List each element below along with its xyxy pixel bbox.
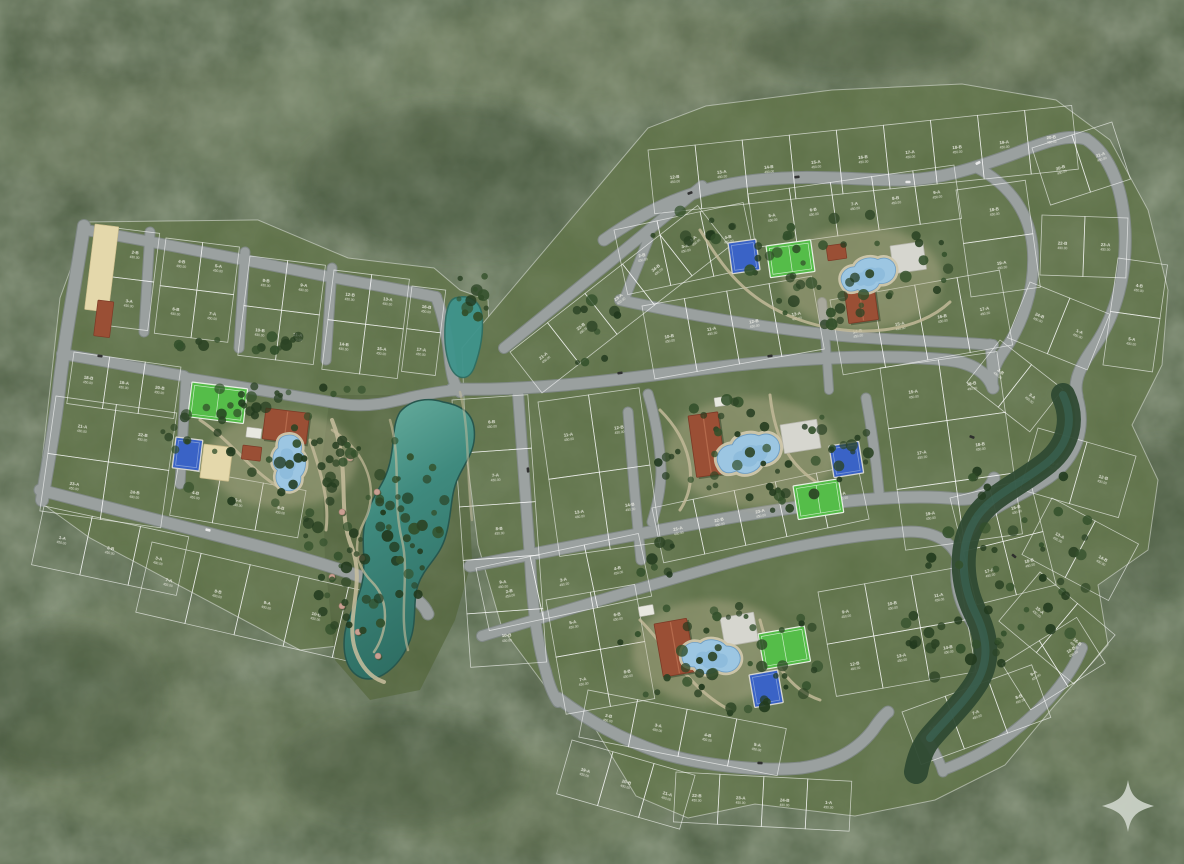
tree	[293, 332, 303, 342]
tree	[732, 460, 743, 471]
tree	[324, 592, 330, 598]
tree	[755, 255, 762, 262]
tree	[776, 298, 782, 304]
tree	[411, 582, 418, 589]
tree	[925, 562, 932, 569]
tree	[375, 497, 384, 506]
tree	[840, 241, 847, 248]
tree	[675, 449, 681, 455]
site-plan-image: 2-B450.003-A450.004-B450.005-A450.006-B4…	[0, 0, 1184, 864]
lot-block: 11-A450.0012-B450.0013-A450.0014-B450.00	[538, 388, 661, 557]
tree	[291, 424, 298, 431]
tree	[826, 318, 838, 330]
tree	[846, 439, 858, 451]
tree	[710, 606, 719, 615]
tree	[270, 345, 280, 355]
tree	[736, 610, 742, 616]
tree	[260, 402, 271, 413]
tree	[301, 455, 308, 462]
lot-label: 12-B450.00	[614, 424, 625, 435]
tree	[402, 493, 413, 504]
tree	[968, 473, 976, 481]
tree	[811, 456, 821, 466]
tree	[1057, 578, 1064, 585]
tree	[601, 355, 608, 362]
tree	[354, 551, 360, 557]
tree	[277, 488, 285, 496]
tree	[1024, 607, 1030, 613]
tree	[859, 303, 865, 309]
tree	[772, 247, 783, 258]
tree	[359, 554, 370, 565]
tree	[164, 433, 173, 442]
tree	[786, 273, 795, 282]
tree	[575, 360, 580, 365]
tree	[799, 620, 805, 626]
tree	[757, 639, 768, 650]
tree	[351, 450, 359, 458]
tree	[1064, 628, 1076, 640]
tree	[696, 657, 703, 664]
tree	[919, 255, 929, 265]
tree	[462, 309, 469, 316]
tree	[391, 437, 398, 444]
tree	[706, 485, 711, 490]
tree	[783, 310, 788, 315]
tree	[1043, 603, 1053, 613]
tree	[1022, 517, 1028, 523]
tree	[997, 659, 1006, 668]
lot-label: 17-A450.00	[416, 347, 428, 358]
tree	[214, 384, 225, 395]
tree	[238, 399, 246, 407]
tree	[414, 590, 423, 599]
tree	[942, 526, 954, 538]
tree	[400, 513, 410, 523]
garden-gazebo	[375, 653, 381, 659]
tree	[341, 577, 351, 587]
tree	[746, 409, 755, 418]
tree	[281, 336, 289, 344]
tree	[465, 295, 476, 306]
tree	[826, 308, 836, 318]
tree	[1045, 624, 1056, 635]
lot-label: 19-A450.00	[999, 139, 1010, 150]
tree	[1040, 547, 1045, 552]
tree	[993, 566, 1000, 573]
lot-label: 10-B450.00	[502, 633, 513, 643]
tree	[856, 308, 865, 317]
tree	[954, 616, 962, 624]
tree	[909, 611, 919, 621]
tree	[807, 623, 816, 632]
tree	[695, 669, 704, 678]
tree	[218, 416, 226, 424]
tree	[756, 661, 767, 672]
tree	[662, 453, 671, 462]
tree	[327, 482, 338, 493]
tree	[1082, 534, 1089, 541]
tree	[796, 280, 806, 290]
tree	[484, 306, 489, 311]
lot-block: 22-B450.0023-A450.00	[1040, 215, 1128, 278]
tree	[1008, 525, 1019, 536]
tree	[338, 457, 347, 466]
tree	[432, 527, 444, 539]
tree	[341, 599, 348, 606]
tree	[941, 278, 946, 283]
tree	[580, 306, 588, 314]
tree	[226, 447, 236, 457]
tree	[586, 294, 598, 306]
tree	[937, 622, 945, 630]
tree	[725, 702, 736, 713]
tree	[933, 286, 941, 294]
tree	[1001, 631, 1007, 637]
tree	[382, 530, 394, 542]
tree	[429, 464, 437, 472]
tree	[343, 613, 351, 621]
tree	[1018, 624, 1025, 631]
tree	[703, 628, 709, 634]
tree	[816, 285, 821, 290]
tree	[837, 477, 843, 483]
tree	[726, 615, 731, 620]
tree	[746, 493, 754, 501]
lot-label: 13-A450.00	[382, 296, 394, 307]
tree	[682, 677, 692, 687]
tree	[319, 384, 327, 392]
tree	[939, 240, 944, 245]
tree	[458, 276, 463, 281]
tree	[980, 545, 986, 551]
car	[526, 467, 529, 472]
lot-label: 16-B450.00	[937, 313, 948, 324]
tree	[915, 239, 923, 247]
tree	[171, 446, 179, 454]
tree	[909, 636, 921, 648]
garden-gazebo	[374, 489, 380, 495]
tree	[835, 303, 846, 314]
tree	[643, 692, 649, 698]
lot-label: 16-B450.00	[966, 380, 977, 391]
tree	[955, 561, 963, 569]
tree	[330, 391, 336, 397]
tree	[785, 504, 794, 513]
tree	[654, 537, 665, 548]
tree	[760, 461, 766, 467]
tree	[573, 306, 582, 315]
tree	[943, 264, 953, 274]
tree	[417, 520, 428, 531]
lot-label: 14-B450.00	[338, 341, 349, 352]
lot-block: 21-A450.0022-B450.0023-A450.0024-B450.00	[40, 396, 177, 528]
tree	[286, 390, 292, 396]
lot-label: 22-B450.00	[137, 432, 148, 443]
tree	[305, 508, 314, 517]
tree	[334, 552, 343, 561]
tree	[389, 542, 399, 552]
lot-block: 12-B450.0013-A450.0014-B450.0015-A450.00	[322, 270, 410, 379]
tree	[457, 297, 462, 302]
tree	[734, 431, 740, 437]
tree	[303, 518, 314, 529]
lot-label: 17-A450.00	[905, 149, 916, 160]
tree	[250, 382, 258, 390]
lot-label: 15-A450.00	[811, 159, 822, 170]
tree	[865, 210, 875, 220]
tree	[423, 475, 432, 484]
tree	[203, 404, 211, 412]
tree	[809, 489, 820, 500]
tree	[362, 595, 371, 604]
tree	[714, 428, 722, 436]
tree	[617, 639, 623, 645]
lot-label: 23-A450.00	[735, 795, 746, 805]
tree	[663, 674, 670, 681]
tree	[174, 340, 184, 350]
court-white	[780, 419, 821, 453]
tree	[713, 483, 719, 489]
tree	[802, 424, 808, 430]
tree	[586, 321, 597, 332]
tree	[942, 252, 947, 257]
tree	[392, 476, 399, 483]
tree	[715, 644, 722, 651]
tree	[829, 213, 840, 224]
tree	[247, 467, 257, 477]
tree	[788, 295, 800, 307]
tree	[760, 422, 770, 432]
tree	[1059, 472, 1069, 482]
tree	[748, 661, 753, 666]
tree	[666, 571, 672, 577]
tree	[330, 621, 339, 630]
tree	[358, 537, 363, 542]
tree	[929, 671, 940, 682]
tree	[811, 667, 818, 674]
tree	[407, 453, 414, 460]
lot-label: 10-B450.00	[664, 333, 675, 344]
tree	[1054, 507, 1064, 517]
tree	[385, 501, 395, 511]
tree	[926, 553, 936, 563]
tree	[676, 645, 688, 657]
tree	[956, 644, 966, 654]
tree	[376, 619, 385, 628]
tree	[992, 649, 1000, 657]
tree	[431, 510, 437, 516]
tree	[314, 590, 324, 600]
tree	[744, 614, 749, 619]
tree	[858, 289, 869, 300]
tree	[478, 289, 490, 301]
tree	[972, 640, 981, 649]
tree	[718, 413, 725, 420]
tree	[863, 447, 874, 458]
tree	[783, 685, 788, 690]
tree	[212, 449, 217, 454]
tree	[995, 580, 1004, 589]
tree	[694, 689, 702, 697]
car	[905, 181, 910, 184]
tree	[670, 544, 675, 549]
tree	[288, 480, 298, 490]
tree	[710, 233, 721, 244]
tree	[984, 605, 993, 614]
tree	[754, 242, 762, 250]
tree	[770, 508, 775, 513]
tree	[654, 458, 663, 467]
tree	[395, 590, 403, 598]
tree	[709, 218, 715, 224]
lot-label: 14-B450.00	[943, 644, 954, 655]
tree	[744, 264, 755, 275]
tree	[386, 524, 392, 530]
tree	[420, 565, 425, 570]
tree	[341, 562, 353, 574]
tree	[366, 495, 371, 500]
lot-label: 23-A450.00	[1100, 242, 1111, 252]
tree	[303, 533, 308, 538]
tree	[663, 605, 671, 613]
tree	[183, 482, 194, 493]
tree	[344, 386, 351, 393]
lot-block: 18-B450.0019-A450.00	[956, 180, 1040, 297]
tree	[762, 444, 771, 453]
tree	[251, 402, 262, 413]
tree	[304, 412, 312, 420]
tree	[792, 245, 800, 253]
tree	[319, 538, 327, 546]
tree	[775, 469, 780, 474]
tree	[343, 522, 352, 531]
tree	[267, 331, 278, 342]
tree	[417, 548, 423, 554]
tree	[769, 489, 776, 496]
tree	[395, 494, 401, 500]
lot-label: 18-B450.00	[989, 206, 1000, 217]
tree	[1006, 583, 1015, 592]
tree	[688, 477, 694, 483]
tree	[699, 684, 705, 690]
screenshot-root: 2-B450.003-A450.004-B450.005-A450.006-B4…	[0, 0, 1184, 864]
tree	[198, 340, 209, 351]
tree	[346, 622, 353, 629]
tree	[785, 460, 793, 468]
tree	[609, 306, 620, 317]
tree	[266, 456, 273, 463]
lot-label: 22-B450.00	[1057, 241, 1067, 251]
tree	[923, 627, 934, 638]
lot-label: 14-B450.00	[625, 502, 636, 513]
tree	[238, 391, 245, 398]
tree	[358, 386, 366, 394]
tree	[900, 271, 912, 283]
tree	[863, 429, 871, 437]
tree	[1083, 515, 1093, 525]
tree	[708, 668, 719, 679]
lot-label: 10-B450.00	[887, 600, 898, 611]
garden-gazebo	[339, 509, 345, 515]
lot-label: 18-B450.00	[83, 375, 94, 386]
tree	[991, 547, 997, 553]
tree	[781, 488, 791, 498]
tree	[347, 547, 353, 553]
tree	[271, 498, 280, 507]
tree	[984, 484, 992, 492]
lot-label: 10-B450.00	[254, 327, 265, 338]
lot-label: 22-B450.00	[692, 793, 702, 803]
tree	[888, 290, 894, 296]
lot-label: 15-A450.00	[376, 346, 388, 357]
outbuilding-white	[638, 604, 655, 616]
tree	[635, 631, 641, 637]
tree	[636, 568, 645, 577]
lot-label: 13-A450.00	[717, 169, 728, 180]
tree	[473, 287, 478, 292]
tree	[834, 461, 845, 472]
tree	[403, 534, 411, 542]
tree	[700, 412, 707, 419]
tree	[1061, 591, 1070, 600]
tree	[374, 594, 384, 604]
lot-block: 4-B450.005-A450.006-B450.007-A450.00	[154, 238, 239, 342]
tree	[404, 569, 414, 579]
lot-label: 16-B450.00	[421, 304, 432, 315]
lot-label: 12-B450.00	[670, 174, 681, 185]
tree	[396, 556, 404, 564]
tree	[481, 273, 488, 280]
car	[757, 762, 762, 765]
tree	[683, 622, 692, 631]
lot-label: 12-B450.00	[344, 292, 355, 303]
tree	[681, 663, 691, 673]
tree	[336, 448, 345, 457]
tree	[680, 230, 691, 241]
tree	[689, 403, 699, 413]
tree	[316, 438, 323, 445]
tree	[662, 472, 670, 480]
tree	[304, 541, 314, 551]
tree	[675, 206, 686, 217]
tree	[773, 673, 779, 679]
lot-label: 18-B450.00	[952, 144, 963, 155]
tree	[181, 409, 192, 420]
tree	[214, 429, 222, 437]
tree	[854, 435, 860, 441]
tree	[818, 240, 828, 250]
tree	[800, 260, 805, 265]
tree	[816, 424, 827, 435]
tree	[375, 522, 385, 532]
tree	[183, 436, 191, 444]
tree	[710, 471, 719, 480]
tree	[786, 231, 794, 239]
lot-label: 14-B450.00	[764, 164, 775, 175]
tree	[654, 689, 660, 695]
tree	[160, 429, 165, 434]
tree	[397, 505, 404, 512]
tree	[806, 277, 818, 289]
tree	[293, 439, 302, 448]
tree	[246, 391, 257, 402]
tree	[819, 415, 824, 420]
tree	[863, 459, 868, 464]
tree	[721, 394, 733, 406]
tree	[581, 358, 590, 367]
tree	[318, 574, 325, 581]
